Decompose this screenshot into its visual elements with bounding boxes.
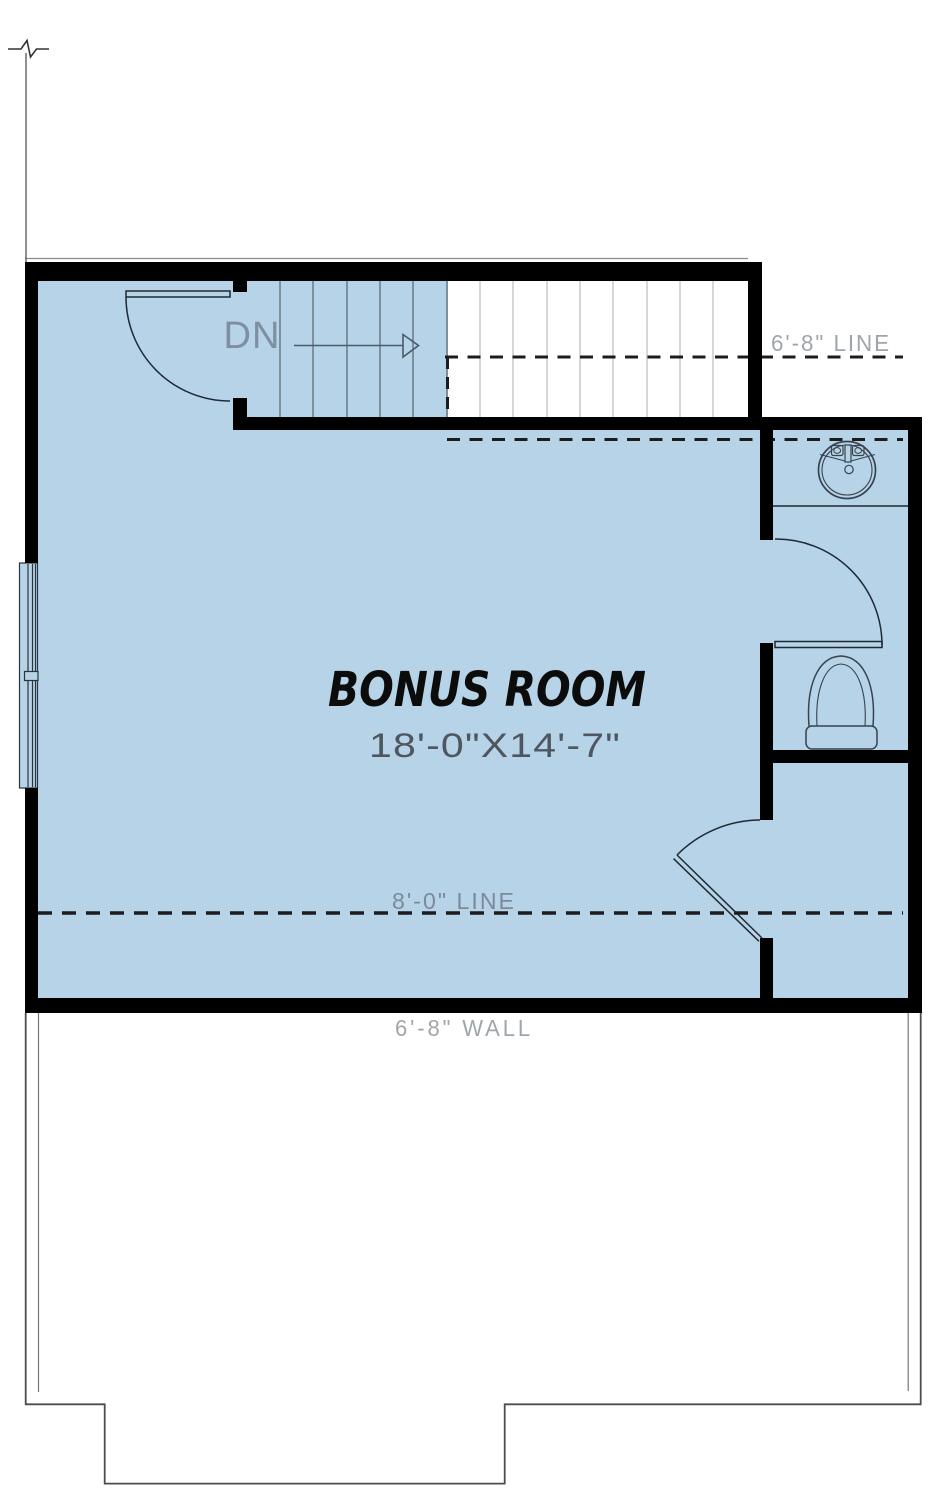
window-symbol	[20, 563, 39, 788]
wall-bath-left-a	[760, 430, 773, 540]
lower-level-outline	[26, 1013, 921, 1484]
room-title: BONUS ROOM	[328, 662, 646, 718]
wall-top	[25, 262, 762, 281]
ceiling-line-lower-label: 8'-0" LINE	[392, 888, 516, 914]
wall-left-upper	[25, 262, 38, 563]
floor-plan-canvas: DN 6'-8" LINE BONUS ROOM 18'-0"X14'-7" 8…	[0, 0, 950, 1506]
open-stairwell-area	[448, 281, 748, 417]
wall-entry-stub-top	[233, 262, 247, 292]
wall-bath-left-b	[760, 643, 773, 820]
floor-plan-page: DN 6'-8" LINE BONUS ROOM 18'-0"X14'-7" 8…	[0, 0, 950, 1506]
break-line-symbol	[8, 41, 49, 263]
wall-bath-left-c	[760, 938, 773, 998]
wall-mid-horizontal	[233, 417, 922, 430]
wall-right	[908, 417, 922, 1013]
wall-height-label: 6'-8" WALL	[395, 1015, 533, 1041]
window-mullion	[25, 672, 39, 681]
wall-stair-right	[748, 262, 762, 430]
wall-left-lower	[25, 788, 38, 998]
ceiling-line-upper-label: 6'-8" LINE	[771, 330, 891, 356]
stair-dn-label: DN	[224, 315, 281, 357]
wall-entry-stub-bottom	[233, 398, 247, 417]
room-dimensions: 18'-0"X14'-7"	[369, 727, 621, 765]
wall-toilet-room-bottom	[773, 750, 908, 763]
wall-bottom	[25, 998, 922, 1013]
